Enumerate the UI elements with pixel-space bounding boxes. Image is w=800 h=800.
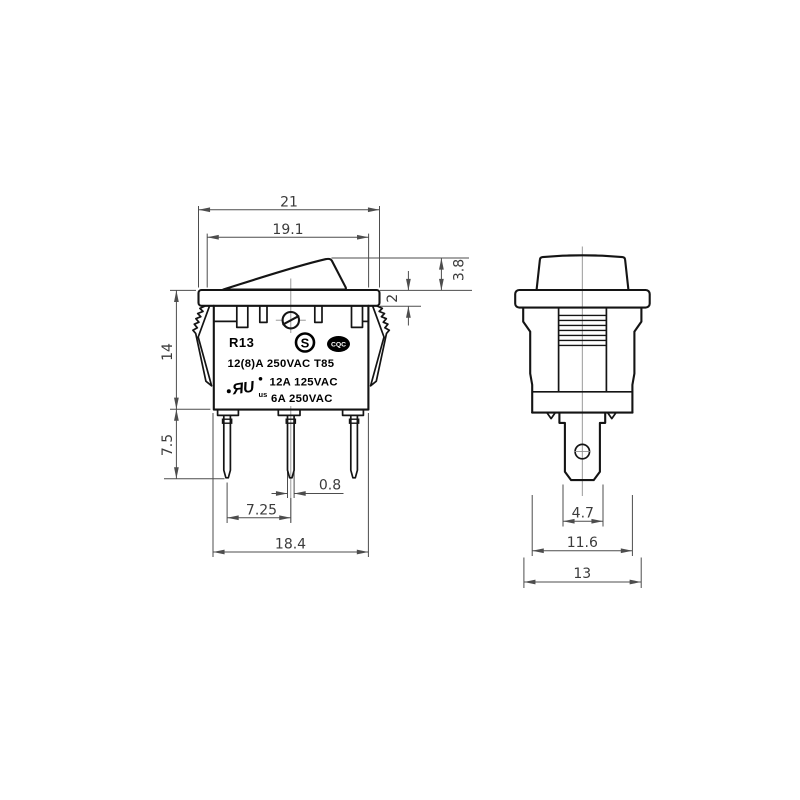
dim-label-13: 13 [573, 566, 591, 582]
flange-front [199, 290, 380, 306]
dim-flange-length: 21 [199, 195, 380, 288]
dim-label-21: 21 [280, 195, 298, 211]
ul-recognized-mark: ЯU us [227, 377, 267, 399]
pin-left [224, 415, 231, 477]
dim-label-7-5: 7.5 [160, 434, 176, 456]
rating-line-1: 12(8)A 250VAC T85 [228, 358, 335, 370]
rocker-actuator-front [223, 259, 346, 290]
dim-body-width: 11.6 [532, 495, 632, 556]
dim-terminal-thickness: 0.8 [272, 472, 344, 499]
dim-terminal-pitch: 7.25 [227, 483, 291, 524]
dim-rocker-length: 19.1 [207, 222, 368, 288]
rating-line-3: 6A 250VAC [271, 393, 333, 405]
s-mark-letter: S [301, 335, 310, 350]
snap-clip-left [193, 306, 212, 386]
dim-mounting-width: 13 [524, 558, 641, 589]
dim-label-7-25: 7.25 [246, 503, 277, 519]
dim-label-19-1: 19.1 [272, 222, 303, 238]
side-dimensions: 4.7 11.6 13 [524, 485, 641, 589]
front-view: 21 19.1 3.8 [160, 195, 472, 558]
front-markings: R13 S CQC 12(8)A 250VAC T85 ЯU us 12A 12… [227, 334, 350, 405]
body-side-left [523, 308, 532, 413]
dim-label-3-8: 3.8 [452, 259, 468, 281]
dim-label-11-6: 11.6 [567, 535, 598, 551]
dim-terminal-width: 4.7 [563, 485, 603, 527]
dim-label-18-4: 18.4 [275, 537, 306, 553]
drawing-svg: 21 19.1 3.8 [0, 0, 800, 800]
snap-clip-right [371, 306, 390, 386]
dim-terminal-length: 7.5 [160, 409, 224, 479]
model-marking: R13 [229, 335, 254, 350]
drawing-canvas: 21 19.1 3.8 [0, 0, 800, 800]
cqc-mark-text: CQC [331, 342, 346, 349]
rating-line-2: 12A 125VAC [270, 377, 338, 389]
dim-body-height: 14 [160, 290, 210, 409]
dim-rocker-height: 3.8 [332, 258, 473, 290]
dim-label-2: 2 [385, 294, 401, 303]
ul-mark-suffix: us [259, 390, 268, 399]
side-view: 4.7 11.6 13 [515, 247, 650, 589]
dim-label-0-8: 0.8 [319, 478, 341, 494]
dim-label-14: 14 [160, 343, 176, 361]
spring-hatch-lines [559, 315, 607, 345]
cqc-certification-mark: CQC [327, 336, 350, 352]
pin-right [351, 415, 358, 477]
dim-label-4-7: 4.7 [572, 506, 594, 522]
ul-mark-text: ЯU [230, 378, 256, 398]
dim-flange-thickness: 2 [380, 271, 421, 326]
s-certification-mark: S [296, 334, 314, 352]
body-side-right [632, 308, 641, 413]
